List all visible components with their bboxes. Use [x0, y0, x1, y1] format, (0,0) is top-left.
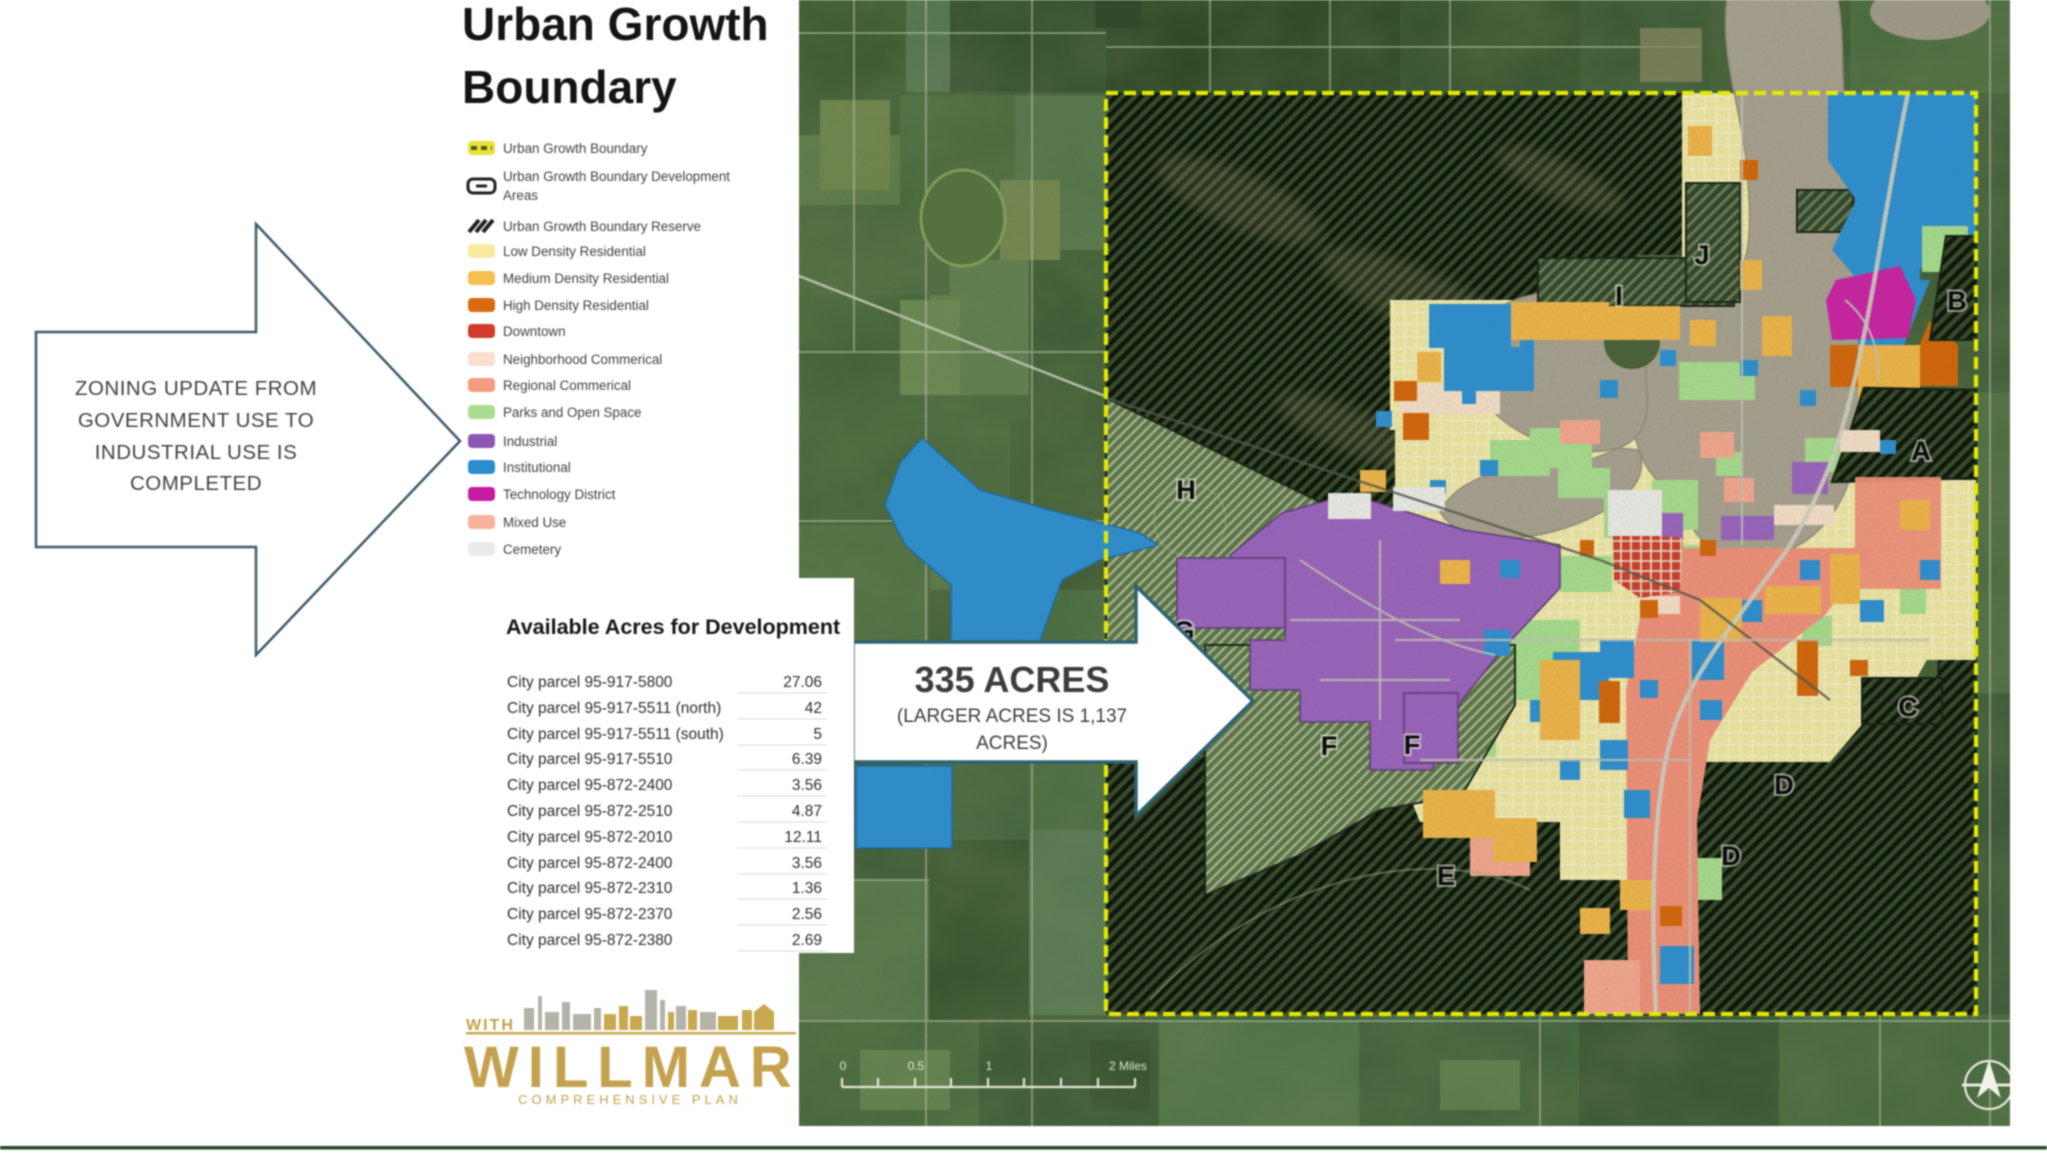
svg-text:D: D: [1774, 770, 1794, 800]
svg-text:27.06: 27.06: [783, 674, 822, 691]
svg-text:Downtown: Downtown: [503, 324, 566, 339]
svg-text:4.87: 4.87: [792, 803, 822, 820]
svg-text:12.11: 12.11: [784, 829, 822, 846]
svg-text:Available Acres for Developmen: Available Acres for Development: [506, 615, 840, 639]
svg-text:42: 42: [805, 700, 822, 717]
svg-text:Boundary: Boundary: [462, 61, 677, 113]
svg-text:City parcel 95-872-2370: City parcel 95-872-2370: [507, 906, 673, 923]
svg-text:INDUSTRIAL USE IS: INDUSTRIAL USE IS: [95, 441, 298, 464]
svg-text:I: I: [1615, 281, 1623, 311]
svg-text:Neighborhood Commerical: Neighborhood Commerical: [503, 352, 662, 367]
svg-text:335 ACRES: 335 ACRES: [915, 659, 1110, 700]
svg-text:City parcel 95-917-5511 (north: City parcel 95-917-5511 (north): [507, 700, 721, 717]
svg-text:H: H: [1176, 475, 1196, 505]
svg-text:Regional Commerical: Regional Commerical: [503, 378, 631, 393]
svg-text:COMPREHENSIVE PLAN: COMPREHENSIVE PLAN: [518, 1092, 742, 1107]
svg-text:ACRES): ACRES): [976, 733, 1048, 754]
svg-text:Low Density Residential: Low Density Residential: [503, 244, 646, 259]
svg-text:6.39: 6.39: [792, 751, 822, 768]
svg-text:GOVERNMENT USE TO: GOVERNMENT USE TO: [78, 409, 314, 432]
svg-text:City parcel 95-917-5800: City parcel 95-917-5800: [507, 674, 673, 691]
svg-text:High Density Residential: High Density Residential: [503, 298, 649, 313]
svg-text:2.56: 2.56: [792, 906, 822, 923]
svg-text:C: C: [1898, 692, 1918, 722]
svg-text:Medium Density Residential: Medium Density Residential: [503, 271, 669, 286]
svg-text:City parcel 95-872-2010: City parcel 95-872-2010: [507, 829, 673, 846]
svg-text:2.69: 2.69: [792, 932, 822, 949]
svg-text:City parcel 95-917-5511 (south: City parcel 95-917-5511 (south): [507, 726, 724, 743]
svg-text:B: B: [1947, 286, 1967, 316]
svg-text:(LARGER ACRES IS 1,137: (LARGER ACRES IS 1,137: [897, 706, 1127, 727]
svg-text:City parcel 95-872-2380: City parcel 95-872-2380: [507, 932, 673, 949]
svg-text:3.56: 3.56: [792, 855, 822, 872]
svg-text:3.56: 3.56: [792, 777, 822, 794]
svg-text:Industrial: Industrial: [503, 434, 557, 449]
svg-text:Urban Growth Boundary: Urban Growth Boundary: [503, 141, 648, 156]
svg-text:Urban Growth Boundary Developm: Urban Growth Boundary Development: [503, 169, 730, 184]
svg-text:A: A: [1911, 436, 1931, 466]
svg-text:1: 1: [986, 1059, 993, 1073]
svg-text:5: 5: [813, 726, 822, 743]
svg-text:COMPLETED: COMPLETED: [130, 472, 262, 495]
svg-text:Areas: Areas: [503, 188, 538, 203]
svg-text:D: D: [1721, 841, 1741, 871]
svg-text:0.5: 0.5: [908, 1059, 925, 1073]
svg-text:City parcel 95-872-2400: City parcel 95-872-2400: [507, 777, 673, 794]
svg-text:Urban Growth: Urban Growth: [462, 0, 769, 50]
svg-text:F: F: [1404, 730, 1421, 760]
svg-text:Parks and Open Space: Parks and Open Space: [503, 405, 641, 420]
svg-text:Mixed Use: Mixed Use: [503, 515, 566, 530]
svg-text:City parcel 95-872-2400: City parcel 95-872-2400: [507, 855, 673, 872]
svg-text:Urban Growth Boundary Reserve: Urban Growth Boundary Reserve: [503, 219, 701, 234]
svg-text:City parcel 95-872-2310: City parcel 95-872-2310: [507, 880, 673, 897]
svg-text:Technology District: Technology District: [503, 487, 616, 502]
svg-text:1.36: 1.36: [792, 880, 822, 897]
svg-text:City parcel 95-872-2510: City parcel 95-872-2510: [507, 803, 673, 820]
svg-text:WILLMAR: WILLMAR: [464, 1035, 801, 1100]
svg-text:E: E: [1437, 861, 1455, 891]
svg-text:City parcel 95-917-5510: City parcel 95-917-5510: [507, 751, 673, 768]
svg-text:F: F: [1321, 731, 1338, 761]
svg-text:ZONING UPDATE FROM: ZONING UPDATE FROM: [75, 377, 317, 400]
svg-text:J: J: [1694, 240, 1709, 270]
svg-text:Institutional: Institutional: [503, 460, 571, 475]
svg-text:WITH: WITH: [466, 1017, 515, 1034]
svg-text:0: 0: [840, 1059, 847, 1073]
svg-text:Cemetery: Cemetery: [503, 542, 561, 557]
svg-text:2 Miles: 2 Miles: [1109, 1059, 1147, 1073]
